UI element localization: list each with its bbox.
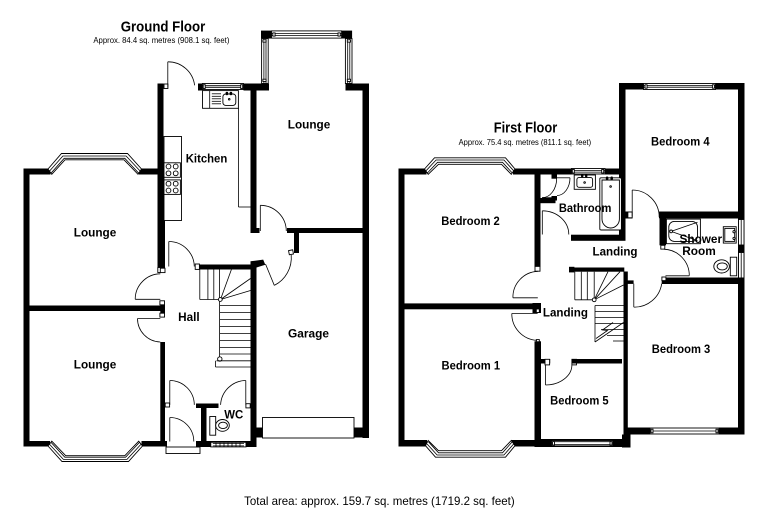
svg-text:Lounge: Lounge [74,358,117,372]
svg-text:Landing: Landing [593,244,638,258]
svg-text:Approx. 84.4 sq. metres (908.1: Approx. 84.4 sq. metres (908.1 sq. feet) [93,35,229,45]
svg-text:Lounge: Lounge [288,118,331,132]
svg-text:WC: WC [224,408,243,422]
svg-text:Bathroom: Bathroom [559,201,612,215]
svg-text:Lounge: Lounge [74,225,117,239]
svg-text:Bedroom 1: Bedroom 1 [442,359,501,373]
svg-text:Bedroom 3: Bedroom 3 [652,342,711,356]
svg-text:Room: Room [682,244,716,258]
svg-text:Approx. 75.4 sq. metres (811.1: Approx. 75.4 sq. metres (811.1 sq. feet) [459,137,592,147]
svg-text:Landing: Landing [543,306,588,320]
svg-text:First Floor: First Floor [494,120,558,136]
svg-text:Ground Floor: Ground Floor [121,20,206,36]
svg-text:Garage: Garage [288,327,329,341]
svg-text:Hall: Hall [178,310,200,324]
svg-text:Bedroom 2: Bedroom 2 [441,214,500,228]
svg-text:Bedroom 4: Bedroom 4 [651,135,710,149]
svg-text:Kitchen: Kitchen [186,151,228,165]
svg-text:Bedroom 5: Bedroom 5 [550,394,609,408]
svg-text:Total area: approx. 159.7 sq.: Total area: approx. 159.7 sq. metres (17… [244,494,515,508]
